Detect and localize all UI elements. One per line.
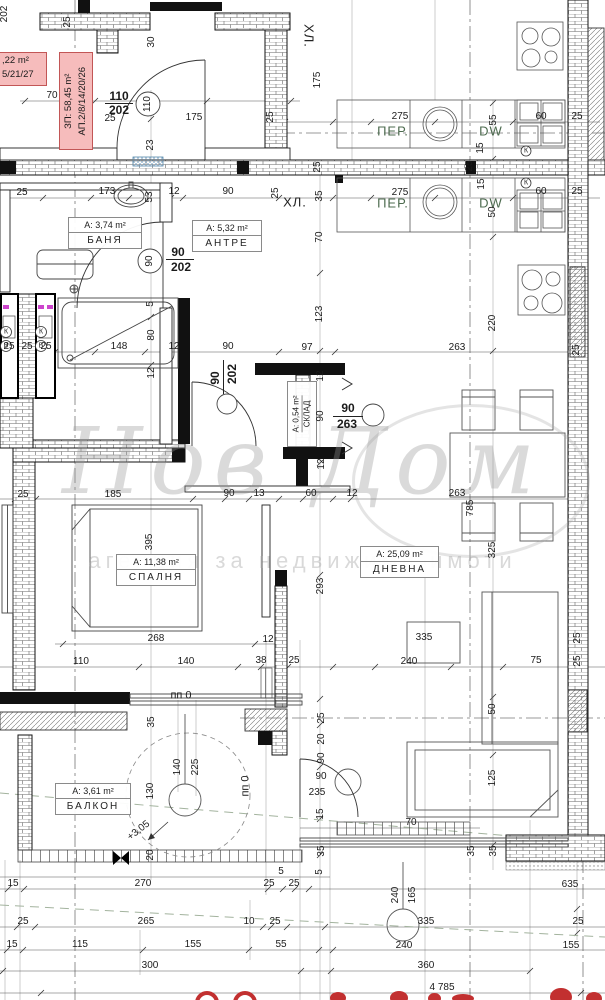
room-name: СКЛАД: [303, 396, 313, 433]
dim-label: 35: [489, 845, 499, 856]
riser-sewage: К: [524, 148, 528, 155]
room-label-sklad: А: 0,54 m² СКЛАД: [287, 381, 317, 447]
dim-label: 235: [309, 788, 326, 798]
dim-label: 275: [392, 188, 409, 198]
dim-label: 90: [223, 489, 234, 499]
dim-label: 265: [138, 917, 155, 927]
dim-label: 70: [46, 91, 57, 101]
dim-label: 50: [488, 703, 498, 714]
dim-label: 53: [145, 191, 155, 202]
stamp-apartment-numbers: АП.2/8/14/20/26: [76, 67, 90, 136]
dim-label: 25: [317, 712, 327, 723]
parapet-mark-top: пп 0: [170, 691, 191, 702]
dim-label: 60: [305, 489, 316, 499]
dim-label: 90: [222, 187, 233, 197]
door-width-bath: 90: [171, 246, 184, 258]
room-area: А: 3,74 m²: [69, 218, 141, 233]
room-name: СПАЛНЯ: [117, 570, 195, 585]
dim-label: 15: [7, 879, 18, 889]
dim-label: 25: [17, 917, 28, 927]
dim-label: 15: [6, 940, 17, 950]
dim-label: 12: [317, 458, 327, 469]
room-name: ДНЕВНА: [361, 562, 438, 577]
room-label-antre: А: 5,32 m² АНТРЕ: [192, 220, 262, 252]
dishwasher-label-top: DW: [479, 125, 503, 138]
dim-label: 15: [477, 178, 487, 189]
room-area: А: 11,38 m²: [117, 555, 195, 570]
dim-label: 80: [147, 329, 157, 340]
dim-label: 60: [535, 112, 546, 122]
dim-label: 25: [3, 342, 14, 352]
red-stamp-fragment: [390, 991, 408, 1000]
room-name: БАНЯ: [69, 233, 141, 248]
opening-width-hall: 90: [341, 402, 354, 414]
door-circle-entry: 110: [143, 96, 153, 112]
dim-label: 5: [146, 301, 156, 307]
door-fraction-bar: [223, 360, 224, 394]
room-label-banya: А: 3,74 m² БАНЯ: [68, 217, 142, 249]
dim-label: 35: [147, 716, 157, 727]
dim-label: 335: [416, 633, 433, 643]
dim-label: 25: [40, 342, 51, 352]
door-width-entry: 110: [109, 90, 128, 102]
dim-label: 25: [271, 187, 281, 198]
dim-label: 185: [105, 490, 122, 500]
dim-label: 202: [0, 6, 10, 23]
dim-label: 25: [573, 632, 583, 643]
room-label-dnevna: А: 25,09 m² ДНЕВНА: [360, 546, 439, 578]
dim-label: 50: [488, 206, 498, 217]
dim-label: 12: [316, 370, 326, 381]
dim-label: 275: [392, 112, 409, 122]
dim-label: 38: [255, 656, 266, 666]
dim-label: 155: [563, 941, 580, 951]
dim-label: 25: [572, 344, 582, 355]
corridor-label-top: ХЛ.: [303, 24, 316, 48]
apartment-stamp-partial: ,22 m² 5/21/27: [0, 52, 47, 86]
room-label-balkon: А: 3,61 m² БАЛКОН: [55, 783, 131, 815]
stamp-partial-area: ,22 m²: [2, 54, 44, 68]
dim-label: 263: [449, 489, 466, 499]
dim-label: 60: [535, 187, 546, 197]
dim-label: 123: [315, 306, 325, 323]
dim-label: 270: [135, 879, 152, 889]
dim-label: 173: [99, 187, 116, 197]
dim-label: 268: [148, 634, 165, 644]
dim-label: 12: [346, 489, 357, 499]
dim-label: 240: [391, 887, 401, 904]
dim-label: 70: [315, 231, 325, 242]
dim-label: 90: [222, 342, 233, 352]
dim-label: 25: [571, 187, 582, 197]
dim-label: 155: [185, 940, 202, 950]
door-width-bedroom: 90: [209, 371, 221, 384]
door-height-bath: 202: [171, 261, 191, 273]
dim-label: 25: [572, 917, 583, 927]
dim-label: 13: [253, 489, 264, 499]
dim-label: 25: [573, 655, 583, 666]
dim-label: 30: [147, 36, 157, 47]
dim-label: 165: [408, 887, 418, 904]
dim-label: 12: [168, 187, 179, 197]
dim-label: 220: [488, 315, 498, 332]
dim-label: 110: [73, 657, 89, 667]
parapet-mark-right: пп 0: [241, 775, 252, 796]
dim-label: 395: [145, 534, 155, 551]
dim-label: 25: [288, 656, 299, 666]
dim-label: 635: [562, 880, 579, 890]
dim-label: 263: [449, 343, 466, 353]
dim-label: 55: [489, 114, 499, 125]
stamp-partial-numbers: 5/21/27: [2, 68, 44, 82]
corridor-label-mid: ХЛ.: [283, 196, 307, 209]
dim-label: 15: [476, 142, 486, 153]
dim-label: 5: [278, 867, 284, 877]
riser-sewage: К: [4, 329, 8, 336]
dim-label: 25: [63, 16, 73, 27]
dim-label: 175: [313, 72, 323, 89]
dim-label: 325: [488, 542, 498, 559]
dim-label: 125: [488, 770, 498, 787]
dim-label: 335: [418, 917, 435, 927]
riser-sewage: К: [524, 180, 528, 187]
dim-label: 360: [418, 961, 435, 971]
dim-label: 140: [173, 759, 183, 776]
dim-label: 300: [142, 961, 159, 971]
dim-label: 240: [401, 657, 418, 667]
door-circle-bath: 90: [145, 255, 155, 266]
dim-label: 25: [263, 879, 274, 889]
dim-label: 130: [146, 783, 156, 800]
room-name: БАЛКОН: [56, 799, 130, 814]
riser-sewage: К: [39, 329, 43, 336]
dim-label: 4 785: [429, 983, 454, 993]
dim-label: 115: [72, 940, 88, 950]
dim-label: 23: [146, 139, 156, 150]
laundry-label-top: ПЕР.: [377, 125, 409, 138]
dim-label: 12: [262, 635, 273, 645]
door-height-bedroom: 202: [226, 364, 238, 384]
red-stamp-fragment: [550, 988, 572, 1000]
dim-label: 35: [467, 845, 477, 856]
dim-label: 25: [465, 160, 475, 171]
dim-label: 10: [243, 917, 254, 927]
dim-label: 55: [275, 940, 286, 950]
dim-label: 12: [147, 367, 157, 378]
dim-label: 97: [301, 343, 312, 353]
dim-label: 25: [288, 879, 299, 889]
dim-label: 70: [405, 818, 416, 828]
dim-label: 25: [266, 111, 276, 122]
dim-label: 25: [17, 490, 28, 500]
dim-label: 20: [146, 849, 156, 860]
dim-label: 785: [466, 500, 476, 517]
dim-label: 5: [315, 869, 325, 875]
room-name: АНТРЕ: [193, 236, 261, 251]
opening-height-hall: 263: [337, 418, 357, 430]
dim-label: 25: [269, 917, 280, 927]
stamp-built-area: ЗП: 58,45 m²: [62, 67, 76, 136]
dim-label: 90: [315, 772, 326, 782]
dim-label: 35: [315, 190, 325, 201]
dim-label: 140: [178, 657, 195, 667]
dim-label: 175: [186, 113, 203, 123]
room-area: А: 5,32 m²: [193, 221, 261, 236]
dim-label: 25: [16, 188, 27, 198]
room-area: А: 3,61 m²: [56, 784, 130, 799]
dim-label: 90: [317, 752, 327, 763]
room-area: А: 25,09 m²: [361, 547, 438, 562]
dim-label: 293: [316, 578, 326, 595]
dim-label: 35: [317, 845, 327, 856]
dim-label: 25: [21, 342, 32, 352]
red-stamp-fragment: [330, 992, 346, 1000]
red-stamp-fragment: [586, 992, 602, 1000]
dim-label: 25: [104, 114, 115, 124]
floor-plan: Нов Дом агенция за недвижими имоти ЗП: 5…: [0, 0, 605, 1000]
red-stamp-fragment: [428, 993, 441, 1000]
room-label-spalnya: А: 11,38 m² СПАЛНЯ: [116, 554, 196, 586]
dim-label: 15: [316, 808, 326, 819]
floor-plan-drawing: [0, 0, 605, 1000]
dim-label: 90: [316, 410, 326, 421]
dim-label: 25: [571, 112, 582, 122]
laundry-label-mid: ПЕР.: [377, 197, 409, 210]
dim-label: 148: [111, 342, 128, 352]
red-stamp-fragment: [452, 994, 474, 1000]
dim-label: 20: [317, 733, 327, 744]
room-area: А: 0,54 m²: [291, 396, 302, 433]
apartment-stamp: ЗП: 58,45 m² АП.2/8/14/20/26: [59, 52, 93, 150]
dim-label: 75: [530, 656, 541, 666]
dim-label: 12: [168, 342, 179, 352]
dim-label: 25: [313, 161, 323, 172]
dim-label: 225: [191, 759, 201, 776]
dim-label: 240: [396, 941, 413, 951]
